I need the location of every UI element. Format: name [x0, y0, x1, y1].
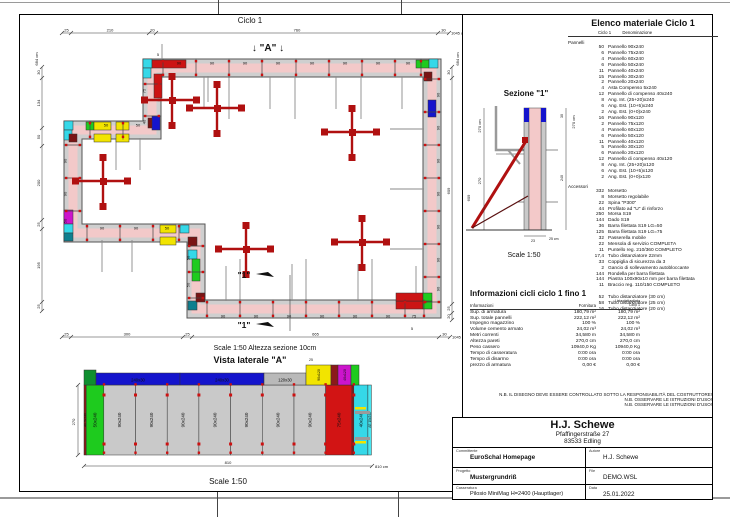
cycle-info-table: Informazioni cicli ciclo 1 fino 1 Inform… — [470, 289, 642, 369]
side-top-panel — [331, 365, 338, 385]
brace-head — [243, 246, 250, 253]
tie-dot — [152, 239, 154, 241]
material-list-title: Elenco materiale Ciclo 1 — [568, 18, 718, 28]
col-informazioni: Informazioni — [470, 303, 548, 308]
tie-dot — [198, 383, 200, 385]
corner-piece-cyan — [64, 121, 73, 130]
panel-label: 90 — [63, 191, 68, 196]
tie-dot — [158, 115, 160, 117]
panel-label: 90 — [134, 226, 139, 231]
tie-dot — [305, 315, 307, 317]
side-panel-label: 90x240 — [181, 412, 186, 427]
fold-mark — [401, 0, 402, 14]
panel-label: 90 — [287, 314, 292, 319]
brace-head — [238, 105, 245, 112]
side-panel-label: 90x240 — [149, 412, 154, 427]
tie-dot — [293, 452, 295, 454]
panel-label: 90 — [436, 286, 441, 291]
tie-dot — [239, 301, 241, 303]
corner-piece-cyan — [143, 68, 151, 78]
corner-piece-cyan — [429, 59, 438, 68]
brace-head — [169, 97, 176, 104]
section-a-marker: ↓ "A" ↓ — [252, 43, 284, 54]
side-panel-label: 120x30 — [278, 378, 292, 383]
side-view-title: Vista laterale "A" — [214, 355, 287, 365]
tie-dot — [438, 210, 440, 212]
dim-label: 25 — [36, 304, 41, 309]
material-list: Elenco materiale Ciclo 1 Ciclo 1 Denomin… — [568, 18, 718, 313]
tie-dot — [261, 383, 263, 385]
wall-panels — [73, 68, 432, 309]
side-panel-label: 90x240 — [307, 412, 312, 427]
tie-dot — [272, 301, 274, 303]
brace-head — [359, 239, 366, 246]
tie-dot — [438, 78, 440, 80]
tie-dot — [293, 443, 296, 446]
tie-dot — [438, 111, 440, 113]
field-casseratura: Casseratura Pilosio MiniMag H=2400 (Haup… — [453, 485, 586, 500]
tie-dot — [197, 394, 200, 397]
company-city: 83533 Edling — [453, 438, 712, 445]
waler-bar — [355, 411, 370, 414]
info-table-header: Informazioni Fornitura Lista dettagliata… — [470, 300, 642, 310]
tie-dot — [353, 383, 355, 385]
panel-label: 75 — [412, 314, 417, 319]
tie-dot — [438, 243, 440, 245]
panel-label: 50 — [104, 123, 109, 128]
dim-label: 210 — [107, 28, 114, 33]
panel-label: 90 — [320, 314, 325, 319]
dim-label: 30 — [446, 70, 451, 75]
tie-dot — [144, 83, 146, 85]
brace-head — [215, 246, 222, 253]
tie-dot — [178, 225, 180, 227]
tie-dot — [198, 452, 200, 454]
dim-label: 665 — [312, 332, 319, 337]
top-extension — [541, 108, 546, 122]
tie-dot — [438, 301, 440, 303]
page-top-rule — [0, 2, 730, 3]
tie-dot — [202, 271, 204, 273]
tie-dot — [152, 225, 154, 227]
brace-head — [186, 105, 193, 112]
dim-label: 270 — [71, 418, 76, 425]
field-progetto: Progetto Mustergrundriß — [453, 468, 586, 485]
panel-label: 90 — [100, 226, 105, 231]
tie-dot — [353, 452, 355, 454]
drawing-sheet: { "palette":{"wall_pink":"#f3c9c9","pane… — [0, 0, 730, 517]
section-title: Sezione "1" — [504, 89, 549, 98]
corner-piece-red — [396, 293, 423, 301]
dim-label: 134 — [36, 99, 41, 106]
tie-dot — [89, 122, 91, 124]
side-panel-label: 90x240 — [117, 412, 122, 427]
tie-dot — [420, 74, 422, 76]
dim-label: 270 cm — [477, 119, 482, 133]
brace-head — [383, 239, 390, 246]
corner-piece-green — [416, 60, 429, 68]
wall-concrete — [73, 68, 432, 309]
dim-label: 20 — [150, 28, 155, 33]
side-view: Scale 1:50 Altezza sezione 10cm Vista la… — [60, 338, 400, 490]
dim-label: 25 — [36, 222, 41, 227]
dim-label: 760 — [294, 28, 301, 33]
top-extension — [524, 108, 529, 122]
dim-label: 50 — [36, 134, 41, 139]
tie-dot — [324, 452, 326, 454]
tie-dot — [293, 383, 295, 385]
side-panel-label: 240x30 — [215, 378, 229, 383]
panel-label: 50 — [186, 282, 191, 287]
brace-head — [359, 264, 366, 271]
tie-dot — [352, 443, 355, 446]
cut-marker-2: "1" — [238, 320, 251, 330]
tie-dot — [324, 394, 327, 397]
brace-head — [100, 203, 107, 210]
tie-dot — [144, 115, 146, 117]
fold-mark — [398, 492, 399, 517]
tie-dot — [134, 443, 137, 446]
tie-dot — [404, 301, 406, 303]
corner-piece-blue — [152, 116, 160, 130]
tie-dot — [229, 443, 232, 446]
fold-mark — [218, 0, 219, 14]
plan-caption: Scale 1:50 Altezza sezione 10cm — [214, 345, 317, 352]
tie-dot — [324, 383, 326, 385]
panel-label: 50 — [136, 123, 141, 128]
tie-dot — [86, 239, 88, 241]
dim-total: 684 cm — [455, 52, 460, 66]
plan-title: Ciclo 1 — [238, 16, 263, 25]
panel-label: 50 — [63, 218, 68, 223]
tie-dot — [119, 225, 121, 227]
tie-dot — [438, 276, 440, 278]
tie-dot — [103, 394, 106, 397]
corner-piece-yellow — [94, 134, 111, 142]
dim-label: 240 — [560, 175, 564, 181]
cut-arrow — [256, 272, 274, 277]
panel-label: 90 — [63, 158, 68, 163]
panel-label: 90 — [386, 314, 391, 319]
corner-piece-maroon — [69, 134, 77, 142]
tie-dot — [202, 297, 204, 299]
tie-dot — [178, 239, 180, 241]
col-lista: Lista dettagliataCiclo 1 — [596, 300, 640, 308]
tie-dot — [188, 245, 190, 247]
material-list-header: Ciclo 1 Denominazione — [568, 30, 718, 37]
panel-label: 90 — [436, 158, 441, 163]
panel-label: 40 — [142, 119, 147, 124]
tie-dot — [424, 210, 426, 212]
tie-dot — [188, 271, 190, 273]
tie-dot — [206, 315, 208, 317]
dim-label: 25 — [64, 28, 69, 33]
info-table-title: Informazioni cicli ciclo 1 fino 1 — [470, 289, 642, 298]
tie-dot — [195, 60, 197, 62]
dim-total: 1045 cm — [452, 335, 462, 340]
tie-dot — [424, 301, 426, 303]
corner-piece-blue — [428, 100, 436, 117]
field-committente: Committente EuroSchal Homepage — [453, 448, 586, 468]
panel-label: 90 — [436, 257, 441, 262]
side-panel-label: 240x30 — [131, 378, 145, 383]
tie-dot — [89, 136, 91, 138]
title-block: H.J. Schewe Pfaffingerstraße 27 83533 Ed… — [452, 417, 713, 500]
brace-head — [321, 129, 328, 136]
side-panel-label: 90x240 — [276, 412, 281, 427]
tie-dot — [166, 383, 168, 385]
tie-dot — [261, 394, 264, 397]
wall-outline — [73, 68, 432, 309]
brace-head — [349, 105, 356, 112]
dim-label: 195 — [36, 261, 41, 268]
brace-head — [100, 178, 107, 185]
tie-dot — [371, 301, 373, 303]
dim-total: 1045 cm — [451, 31, 462, 36]
tie-dot — [424, 78, 426, 80]
tie-dot — [328, 60, 330, 62]
panel-label: 90 — [310, 61, 315, 66]
brace-head — [124, 178, 131, 185]
tie-dot — [394, 60, 396, 62]
corner-piece-cyan — [64, 224, 73, 233]
tie-dot — [134, 452, 136, 454]
brace-head — [214, 105, 221, 112]
tie-dot — [295, 74, 297, 76]
tie-dot — [361, 74, 363, 76]
corner-piece-yellow — [160, 237, 176, 245]
tie-dot — [361, 60, 363, 62]
tie-dot — [103, 383, 105, 385]
tie-dot — [261, 74, 263, 76]
panel-label: 50 — [186, 255, 191, 260]
panel-label: 90 — [376, 61, 381, 66]
info-row: prezzo di armatura0,00 €0,00 € — [470, 363, 642, 369]
tie-dot — [272, 315, 274, 317]
tie-dot — [162, 60, 164, 62]
tie-dot — [195, 74, 197, 76]
panel-label: 50 — [165, 226, 170, 231]
tie-dot — [424, 243, 426, 245]
dim-label: 810 cm — [375, 464, 389, 469]
tie-dot — [424, 144, 426, 146]
tie-dot — [239, 315, 241, 317]
corner-piece-teal — [188, 301, 197, 310]
waler-bar — [355, 441, 366, 444]
corner-piece-teal — [64, 233, 73, 241]
tie-dot — [438, 144, 440, 146]
dim-label: 25 — [64, 332, 69, 337]
panel-label: 90 — [243, 61, 248, 66]
dim-label: 300 — [124, 332, 131, 337]
field-data: Data 25.01.2022 — [586, 485, 712, 500]
tie-dot — [206, 301, 208, 303]
panel-label: 90 — [436, 125, 441, 130]
dim-label: 270 — [477, 177, 482, 184]
brace-head — [72, 178, 79, 185]
dim-total: 684 cm — [34, 52, 39, 66]
tie-dot — [424, 177, 426, 179]
dim-label: 30 — [441, 28, 446, 33]
brace-head — [193, 97, 200, 104]
form-panel — [524, 108, 529, 230]
tie-dot — [122, 136, 124, 138]
brace-head — [349, 154, 356, 161]
tie-dot — [103, 452, 105, 454]
dim-label: 25 — [185, 332, 190, 337]
tie-dot — [134, 383, 136, 385]
tie-dot — [261, 443, 264, 446]
section-scale: Scale 1:50 — [507, 252, 540, 259]
form-panel — [541, 108, 546, 230]
tie-dot — [228, 60, 230, 62]
corner-piece-cyan — [180, 225, 189, 233]
waler-bar — [355, 437, 370, 440]
wall-core — [529, 108, 541, 230]
dim-label: 810 — [225, 460, 232, 465]
small-dim: 5 — [157, 52, 160, 57]
title-block-header: H.J. Schewe Pfaffingerstraße 27 83533 Ed… — [453, 418, 712, 448]
panel-label: 90 — [436, 191, 441, 196]
tie-dot — [293, 394, 296, 397]
tie-dot — [424, 111, 426, 113]
corner-piece-cyan — [143, 59, 152, 68]
dim-label: 30 — [442, 332, 447, 337]
dim-label: 200 — [36, 179, 41, 186]
brace-head — [169, 73, 176, 80]
tie-dot — [295, 60, 297, 62]
side-panel-label: 90x240 — [212, 412, 217, 427]
brace-head — [214, 130, 221, 137]
tie-dot — [65, 177, 67, 179]
company-name: H.J. Schewe — [453, 418, 712, 431]
tie-dot — [228, 74, 230, 76]
tie-dot — [166, 443, 169, 446]
tie-dot — [229, 394, 232, 397]
material-row: 2Ang. Est. (0+0)x120 — [568, 175, 718, 181]
tie-dot — [158, 83, 160, 85]
header-name: Denominazione — [622, 30, 652, 35]
tie-dot — [371, 315, 373, 317]
tie-dot — [65, 210, 67, 212]
header-count: Ciclo 1 — [598, 30, 611, 35]
tie-dot — [261, 452, 263, 454]
brace-head — [373, 129, 380, 136]
waler-bar — [355, 407, 366, 410]
note-line: N.B. OSSERVARE LE ISTRUZIONI D'USO! — [440, 402, 712, 407]
panel-label: 90 — [353, 314, 358, 319]
field-autore: Autore H.J. Schewe — [586, 448, 712, 468]
brace-head — [349, 129, 356, 136]
tie-dot — [424, 276, 426, 278]
brace-head — [100, 154, 107, 161]
tie-dot — [79, 144, 81, 146]
walkway-bracket — [496, 106, 524, 150]
side-panel-label: 40x120 — [343, 369, 347, 381]
dim-label: 609 — [466, 194, 471, 201]
panel-label: 90 — [210, 61, 215, 66]
tie-dot — [86, 225, 88, 227]
side-panel-label: 50x240 — [93, 412, 98, 427]
tie-dot — [352, 394, 355, 397]
col-fornitura: Fornitura — [548, 303, 596, 308]
brace-head — [243, 222, 250, 229]
panel-label: 90 — [436, 92, 441, 97]
tie-dot — [188, 297, 190, 299]
side-panel-label: AE 10x240 — [368, 412, 372, 428]
side-top-panel — [84, 370, 96, 385]
brace-head — [169, 122, 176, 129]
brace-head — [141, 97, 148, 104]
tie-dot — [261, 60, 263, 62]
brace-head — [267, 246, 274, 253]
side-view-scale: Scale 1:50 — [209, 477, 247, 486]
side-panel-label: 75x240 — [336, 412, 341, 427]
tie-dot — [338, 315, 340, 317]
tie-dot — [65, 144, 67, 146]
tie-dot — [394, 74, 396, 76]
tie-dot — [134, 394, 137, 397]
cut-arrow — [256, 322, 274, 327]
panel-label: 75 — [142, 88, 147, 93]
tie-dot — [79, 210, 81, 212]
dim-label: 25 — [309, 358, 313, 362]
tie-dot — [202, 245, 204, 247]
dim-label: 20 — [446, 314, 451, 319]
side-panel-label: 90x120 — [317, 369, 321, 381]
cut-marker-1: "1" — [238, 270, 251, 280]
panel-label: 90 — [221, 314, 226, 319]
tie-dot — [103, 443, 106, 446]
dim-label: 609 — [446, 187, 451, 194]
tie-dot — [328, 74, 330, 76]
corner-piece-red — [396, 301, 423, 309]
prop-head — [522, 137, 528, 143]
dim-label: 25 — [446, 306, 451, 311]
tie-dot — [229, 452, 231, 454]
tie-dot — [197, 443, 200, 446]
brace-head — [331, 239, 338, 246]
dim-label: 30 — [36, 70, 41, 75]
tie-dot — [122, 122, 124, 124]
tie-dot — [162, 74, 164, 76]
panel-label: 90 — [177, 61, 182, 66]
panel-label: 90 — [436, 224, 441, 229]
panel-label: 90 — [276, 61, 281, 66]
brace-head — [214, 81, 221, 88]
dim-label: 23 — [531, 239, 535, 243]
tie-dot — [338, 301, 340, 303]
corner-piece-maroon — [188, 237, 197, 246]
tie-dot — [166, 394, 169, 397]
panel-label: 90 — [406, 61, 411, 66]
tie-dot — [119, 239, 121, 241]
side-panel-label: 40x240 — [358, 412, 363, 427]
tie-dot — [423, 315, 425, 317]
corner-piece-red — [154, 74, 162, 98]
tie-dot — [166, 452, 168, 454]
tie-dot — [229, 383, 231, 385]
tie-dot — [305, 301, 307, 303]
fold-mark — [217, 492, 218, 517]
panel-label: 90 — [254, 314, 259, 319]
brace-head — [359, 215, 366, 222]
tie-dot — [404, 315, 406, 317]
dim-label: 25 cm — [549, 237, 559, 241]
disclaimer-notes: N.B. IL DISEGNO DEVE ESSERE CONTROLLATO … — [440, 392, 712, 408]
small-dim: 5 — [411, 326, 414, 331]
corner-piece-yellow — [94, 122, 111, 130]
